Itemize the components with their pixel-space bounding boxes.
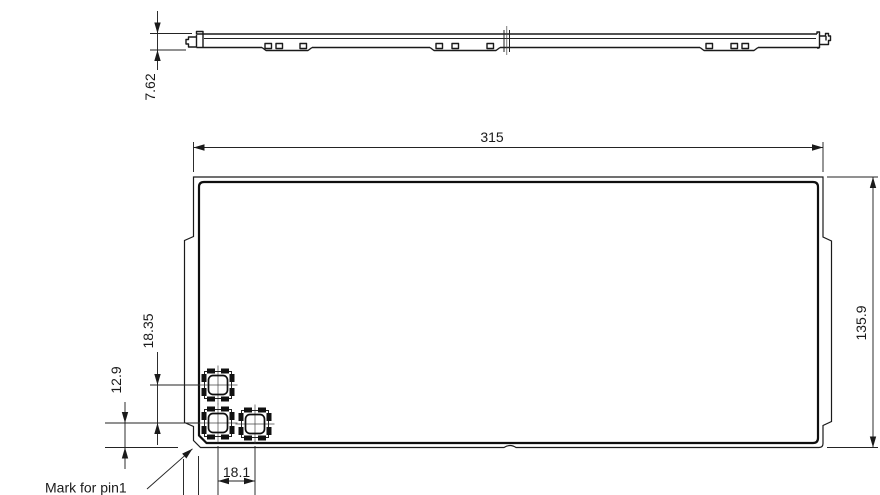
pad-footprints [199, 366, 275, 444]
dimension-label-pad-column-spacing: 18.1 [223, 464, 250, 480]
dimension-label-pad-row-spacing: 18.35 [140, 313, 156, 348]
profile-left-hook [186, 37, 197, 47]
profile-right-cap [817, 32, 820, 48]
dimension-label-body-height: 135.9 [853, 305, 869, 340]
dimension-body-height: 135.9 [827, 177, 878, 448]
dimension-label-pad-bottom-offset: 12.9 [108, 366, 124, 393]
dimension-label-body-width: 315 [480, 129, 504, 145]
pad-footprint [236, 405, 275, 444]
pin1-note-label: Mark for pin1 [45, 480, 127, 495]
technical-drawing: 7.62 315 135.9 18.35 [0, 0, 880, 495]
front-body-outline [199, 182, 818, 443]
pin1-leader-line [147, 449, 193, 489]
dimension-body-width: 315 [194, 129, 824, 172]
side-profile-view [186, 26, 831, 55]
pin1-annotation: Mark for pin1 [45, 449, 193, 495]
front-outer-outline [185, 177, 832, 448]
dimension-profile-thickness: 7.62 [142, 11, 192, 101]
drawing-canvas: 7.62 315 135.9 18.35 [0, 0, 880, 495]
pad-footprint [199, 404, 238, 443]
extension-lines [194, 142, 824, 172]
front-view [185, 177, 832, 448]
pad-footprint [199, 366, 238, 405]
dimension-label-profile-thickness: 7.62 [142, 73, 158, 100]
profile-right-tab [820, 34, 831, 45]
dimension-pad-column-spacing: 18.1 [184, 446, 256, 495]
